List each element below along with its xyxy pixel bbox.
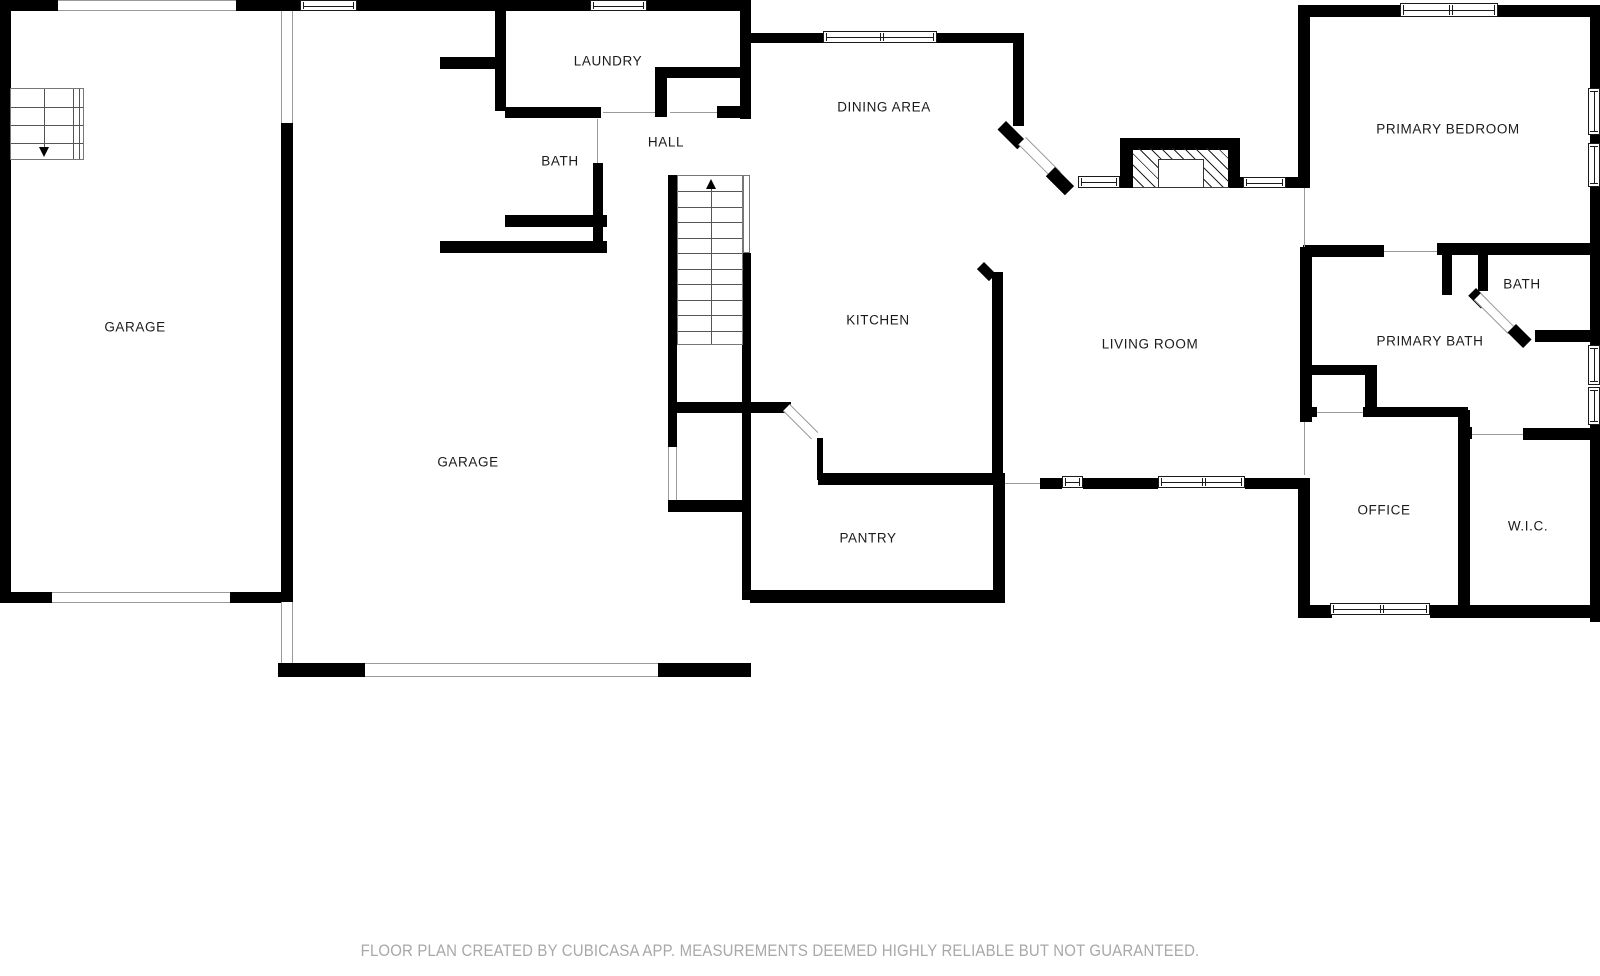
wall — [1040, 478, 1062, 489]
door-opening-line — [597, 119, 598, 163]
window-glass-line — [1590, 381, 1598, 382]
wall — [1535, 330, 1600, 342]
wall — [1300, 247, 1312, 422]
window-glass-line — [1449, 5, 1450, 15]
window — [1078, 176, 1120, 188]
diagonal-door — [1474, 293, 1515, 334]
wall — [677, 402, 791, 413]
wall — [818, 473, 1005, 485]
wall — [750, 590, 1005, 603]
stair-tread — [678, 253, 742, 254]
window-glass-line — [1205, 478, 1206, 486]
stair-edge-line — [73, 89, 74, 159]
window-glass-line — [1452, 5, 1453, 15]
stair-edge-line — [79, 89, 80, 159]
window-glass-line — [643, 2, 644, 9]
stair-tread — [678, 284, 742, 285]
wall — [505, 215, 607, 227]
door-opening-line — [670, 112, 717, 113]
window-glass-line — [1594, 348, 1595, 382]
room-label-wic: W.I.C. — [1508, 519, 1548, 534]
window — [1588, 143, 1600, 187]
window-glass-line — [1590, 146, 1598, 147]
window-glass-line — [1403, 5, 1404, 15]
stairs-main — [677, 175, 743, 345]
wall-opening — [668, 447, 677, 500]
room-label-bath-2: BATH — [1503, 277, 1540, 292]
wall — [993, 478, 1005, 603]
wall — [505, 107, 601, 118]
wall — [1298, 605, 1332, 618]
window — [1158, 476, 1245, 488]
wall — [740, 33, 824, 43]
window — [1588, 387, 1600, 425]
window-glass-line — [933, 33, 934, 41]
window — [1588, 345, 1600, 385]
window-glass-line — [303, 2, 304, 9]
wall — [1083, 478, 1158, 489]
window-glass-line — [1590, 91, 1598, 92]
window-glass-line — [1079, 478, 1080, 486]
room-label-primary-bath: PRIMARY BATH — [1377, 334, 1484, 349]
room-label-garage-1: GARAGE — [104, 320, 165, 335]
wall — [495, 11, 506, 111]
wall — [1478, 255, 1488, 291]
window — [1400, 3, 1498, 17]
room-label-kitchen: KITCHEN — [846, 313, 909, 328]
window-glass-line — [1590, 390, 1598, 391]
diagonal-wall — [1046, 167, 1074, 195]
room-label-hall: HALL — [648, 135, 684, 150]
wall — [937, 33, 1014, 43]
wall — [1120, 145, 1133, 188]
wall-opening — [52, 592, 230, 603]
diagonal-wall — [1508, 324, 1532, 348]
door-opening-line — [1304, 188, 1305, 247]
window-glass-line — [1594, 390, 1595, 422]
window-glass-line — [1081, 178, 1082, 186]
wall — [440, 57, 496, 69]
window — [1588, 88, 1600, 135]
wall — [1590, 187, 1600, 345]
window-glass-line — [1246, 179, 1247, 186]
stair-tread — [678, 222, 742, 223]
window-glass-line — [1081, 182, 1117, 183]
wall — [1298, 478, 1310, 617]
door-opening-line — [1384, 251, 1437, 252]
stairs-corner — [10, 88, 84, 160]
wall — [740, 9, 751, 119]
diagonal-door — [783, 404, 818, 439]
stair-tread — [678, 207, 742, 208]
wall — [593, 163, 603, 253]
wall — [1590, 5, 1600, 90]
stair-center-line — [711, 188, 712, 344]
window-glass-line — [593, 6, 644, 7]
wall-opening — [281, 602, 293, 663]
wall — [655, 67, 667, 117]
window — [1062, 476, 1083, 488]
wall — [655, 67, 744, 78]
window — [823, 31, 937, 43]
wall — [1430, 605, 1600, 618]
window-glass-line — [880, 33, 881, 41]
window — [300, 0, 357, 11]
wall-opening — [281, 11, 293, 123]
wall — [1463, 427, 1472, 439]
window-glass-line — [1065, 482, 1080, 483]
wall — [236, 0, 300, 11]
window-glass-line — [1590, 183, 1598, 184]
window-glass-line — [1590, 131, 1598, 132]
wall — [1298, 5, 1310, 188]
wall — [1013, 33, 1024, 126]
wall — [817, 438, 823, 480]
wall — [0, 0, 58, 11]
wall — [1496, 5, 1600, 17]
room-label-living-room: LIVING ROOM — [1102, 337, 1199, 352]
footer-disclaimer: FLOOR PLAN CREATED BY CUBICASA APP. MEAS… — [361, 941, 1200, 961]
wall — [1523, 428, 1600, 440]
room-label-bath: BATH — [541, 154, 578, 169]
stairs-down-arrow-icon — [39, 147, 49, 157]
stair-tread — [678, 269, 742, 270]
window-glass-line — [883, 33, 884, 41]
stair-rail — [743, 175, 750, 253]
stair-tread — [678, 191, 742, 192]
window-glass-line — [1241, 478, 1242, 486]
window-glass-line — [1380, 605, 1381, 613]
stairs-up-arrow-icon — [706, 179, 716, 189]
wall — [0, 592, 52, 603]
room-label-office: OFFICE — [1357, 503, 1410, 518]
room-label-laundry: LAUNDRY — [574, 54, 642, 69]
fireplace-firebox — [1158, 159, 1204, 188]
window — [590, 0, 647, 11]
window — [1243, 177, 1286, 188]
wall — [658, 663, 751, 677]
window-glass-line — [1333, 605, 1334, 613]
window-glass-line — [593, 2, 594, 9]
wall — [668, 500, 751, 512]
stair-tread — [678, 238, 742, 239]
wall — [668, 175, 677, 447]
window — [1330, 603, 1430, 615]
room-label-dining-area: DINING AREA — [837, 100, 931, 115]
stair-tread — [678, 331, 742, 332]
wall — [1458, 410, 1470, 610]
window-glass-line — [1590, 348, 1598, 349]
floor-plan-canvas: FLOOR PLAN CREATED BY CUBICASA APP. MEAS… — [0, 0, 1600, 976]
wall — [1365, 365, 1377, 412]
window-glass-line — [353, 2, 354, 9]
wall — [440, 241, 607, 253]
wall — [1437, 243, 1600, 255]
window-glass-line — [826, 33, 827, 41]
door-opening-line — [1317, 412, 1363, 413]
window-glass-line — [1116, 178, 1117, 186]
wall — [1442, 255, 1452, 295]
window-glass-line — [303, 6, 354, 7]
window-glass-line — [1594, 146, 1595, 184]
room-label-primary-bedroom: PRIMARY BEDROOM — [1376, 122, 1520, 137]
stair-center-line — [44, 89, 45, 149]
stair-tread — [678, 315, 742, 316]
wall-opening — [365, 663, 658, 677]
room-label-garage-2: GARAGE — [437, 455, 498, 470]
wall-opening — [58, 0, 236, 11]
door-opening-line — [1304, 422, 1305, 475]
window-glass-line — [1246, 183, 1283, 184]
wall — [1590, 425, 1600, 622]
door-opening-line — [1005, 483, 1040, 484]
wall — [1307, 407, 1317, 417]
window-glass-line — [1590, 421, 1598, 422]
stair-tread — [678, 300, 742, 301]
window-glass-line — [1065, 478, 1066, 486]
room-label-pantry: PANTRY — [839, 531, 896, 546]
window-glass-line — [1426, 605, 1427, 613]
wall — [1303, 245, 1384, 257]
wall — [992, 272, 1003, 478]
wall — [281, 123, 293, 607]
wall — [647, 0, 751, 11]
door-opening-line — [603, 112, 655, 113]
door-opening-line — [1472, 434, 1523, 435]
window-glass-line — [1383, 605, 1384, 613]
window-glass-line — [1494, 5, 1495, 15]
wall — [1285, 177, 1298, 188]
window-glass-line — [1282, 179, 1283, 186]
wall — [1363, 407, 1468, 417]
wall — [357, 0, 590, 11]
wall — [742, 253, 751, 600]
wall — [1228, 138, 1240, 188]
window-glass-line — [1594, 91, 1595, 132]
wall — [278, 663, 366, 677]
window-glass-line — [1161, 478, 1162, 486]
window-glass-line — [1202, 478, 1203, 486]
wall — [1298, 5, 1402, 17]
wall — [230, 592, 283, 603]
